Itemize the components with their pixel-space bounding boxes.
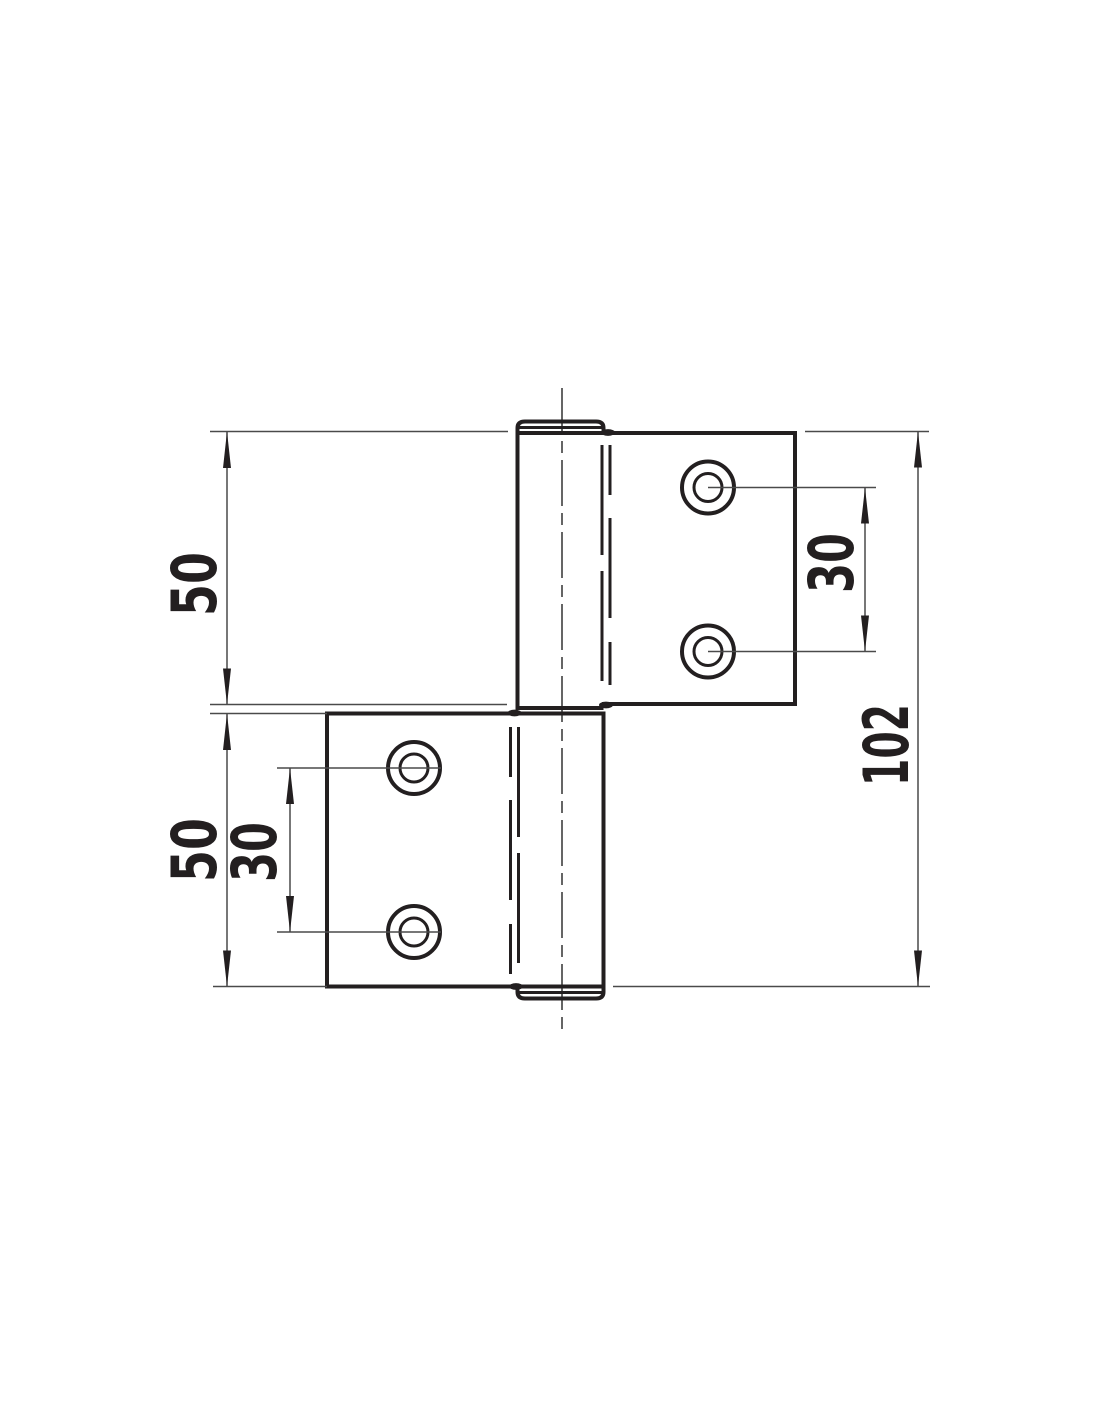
arrowhead-down: [223, 951, 231, 987]
arrowhead-down: [223, 669, 231, 705]
dimension-upper-hole-spacing: 30: [708, 488, 876, 652]
arrowhead-up: [223, 432, 231, 469]
tangent-dot-top-cap: [601, 429, 615, 436]
dimension-upper-leaf-height: 50: [158, 432, 508, 705]
tangent-dot-lower-junction: [508, 710, 522, 717]
technical-drawing-canvas: 50 50 30: [0, 0, 1100, 1422]
hinge-body: [327, 388, 795, 1031]
dimension-label: 102: [850, 704, 923, 786]
arrowhead-up: [223, 714, 231, 751]
arrowhead-up: [914, 432, 922, 468]
dimension-label: 30: [218, 822, 291, 882]
lower-leaf-outline: [327, 714, 606, 987]
upper-leaf-outline: [516, 433, 796, 704]
arrowhead-up: [286, 768, 294, 804]
dimension-label: 50: [158, 552, 231, 616]
dimension-overall-height: 102: [613, 432, 930, 987]
arrowhead-up: [861, 488, 869, 524]
dimension-label: 30: [795, 533, 868, 593]
arrowhead-down: [861, 616, 869, 652]
tangent-dot-upper-junction: [599, 702, 613, 709]
arrowhead-down: [914, 951, 922, 987]
tangent-dot-bottom-cap: [509, 983, 523, 990]
arrowhead-down: [286, 896, 294, 932]
flag-hinge-drawing: 50 50 30: [0, 0, 1100, 1422]
